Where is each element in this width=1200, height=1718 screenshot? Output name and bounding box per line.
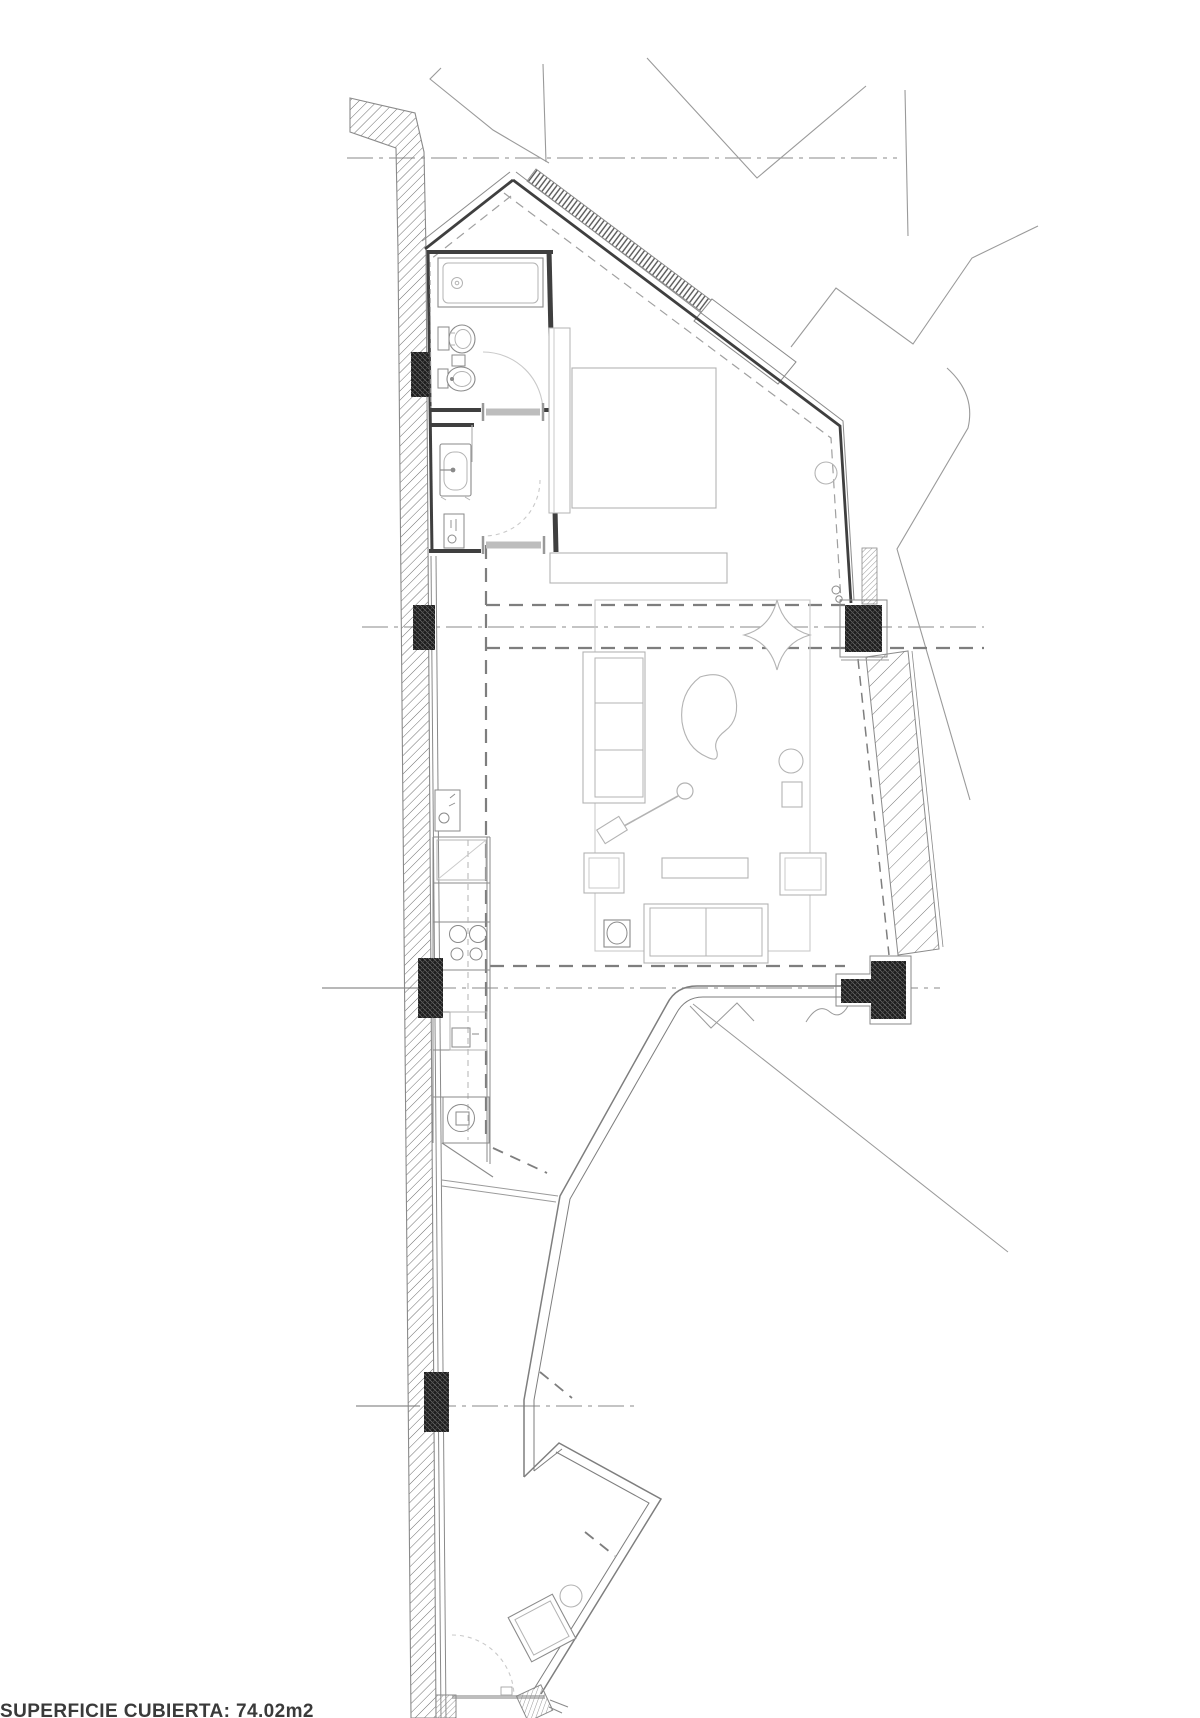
water-heater [444, 514, 464, 548]
context-line [543, 64, 546, 162]
bed [572, 368, 716, 508]
bathroom-2 [429, 425, 544, 554]
wardrobe [549, 328, 570, 513]
small-table [782, 782, 802, 807]
pilaster [516, 1685, 552, 1718]
west-exterior-wall [350, 98, 446, 1718]
washbasin [440, 444, 471, 500]
toilet [438, 325, 475, 353]
context-line [905, 90, 908, 236]
coffee-table [662, 858, 748, 878]
context-line [430, 68, 549, 163]
bidet [438, 367, 475, 391]
pilaster [436, 1695, 456, 1718]
column [424, 1372, 449, 1432]
sofa-bottom [644, 904, 768, 963]
column [411, 352, 429, 397]
hatched-roof-band [527, 169, 712, 313]
bathtub [438, 258, 543, 307]
bathroom-shelf [452, 355, 465, 366]
deck-edge-line [442, 1180, 558, 1202]
floor-plan-drawing [0, 0, 1200, 1718]
column [418, 958, 443, 1018]
side-table-left [584, 853, 624, 893]
context-line [693, 1004, 1008, 1252]
hatched-wall-strip [862, 548, 877, 604]
context-line [791, 226, 1038, 347]
terrace-table [508, 1594, 576, 1662]
counter-end [442, 1143, 493, 1177]
door-swing-arc [452, 1635, 514, 1697]
wall-liner [436, 556, 446, 1718]
wall-inner-face [425, 180, 513, 249]
column-east-2 [836, 956, 911, 1024]
door-swing-arc [484, 480, 540, 536]
stool [604, 920, 630, 947]
kitchen-sink [443, 1097, 489, 1143]
kitchen [433, 790, 558, 1202]
door-swing-arc [483, 352, 543, 412]
adjacent-buildings-outline [430, 58, 1038, 1252]
railing-outer [524, 986, 841, 1477]
railing-inner [534, 997, 841, 1471]
east-facade-band [858, 651, 943, 955]
area-label: SUPERFICIE CUBIERTA: 74.02m2 [0, 1701, 314, 1718]
bay-wall-inner [534, 1449, 649, 1689]
living-room [583, 600, 826, 963]
sofa-left [583, 652, 645, 803]
organic-motif [682, 675, 737, 759]
bedroom [549, 328, 837, 583]
column [413, 605, 435, 650]
context-line [647, 58, 866, 178]
dashed-line [585, 1532, 615, 1556]
door-stop [501, 1687, 512, 1695]
floor-plan-page: SUPERFICIE CUBIERTA: 74.02m2 [0, 0, 1200, 1718]
bidet-faucet-icon [450, 377, 454, 381]
side-table-right [780, 853, 826, 895]
wall-dashed-liner [431, 196, 511, 259]
plant [779, 749, 803, 773]
dashed-line [540, 1372, 572, 1398]
annotation-squiggle [806, 1006, 848, 1022]
terrace-stool [560, 1585, 582, 1607]
bay-wall-outer [524, 1443, 661, 1694]
lamp-base [597, 816, 628, 843]
basin-faucet-icon [451, 468, 456, 473]
kitchen-wall-fixture [435, 790, 460, 831]
star-motif [744, 600, 810, 670]
terrace [436, 986, 848, 1718]
bathroom-1 [428, 250, 556, 552]
dashed-line [493, 1148, 547, 1173]
column-east-1 [840, 600, 889, 660]
hatched-wall [350, 98, 436, 1718]
bed-bench [550, 553, 727, 583]
hatch-marks [690, 1003, 754, 1028]
